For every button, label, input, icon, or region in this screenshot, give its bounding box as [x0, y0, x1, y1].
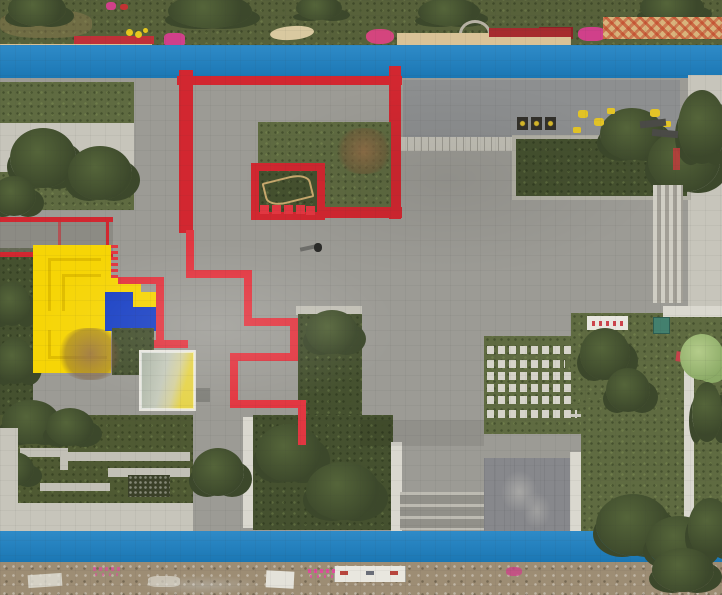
aerial-photo-stage	[0, 0, 722, 595]
pink-graffiti	[308, 568, 336, 580]
stone-bench-strip	[400, 137, 514, 151]
tree-icon	[692, 382, 722, 442]
debris-white-panels	[334, 566, 406, 582]
pink-spinner	[366, 29, 394, 44]
tree-icon	[192, 448, 244, 496]
red-dotted-railing	[111, 245, 118, 279]
red-edge-bottom	[150, 340, 188, 348]
bare-shrub	[336, 128, 392, 174]
zigzag-segment	[230, 353, 298, 361]
debris-white-box	[266, 570, 295, 588]
red-marker	[673, 148, 680, 170]
maze-wall-top	[177, 76, 402, 85]
slab-row	[487, 346, 571, 354]
slab-row	[487, 372, 575, 380]
zigzag-segment	[298, 400, 306, 445]
dark-ramp	[484, 458, 572, 533]
pebble-patch	[128, 475, 170, 497]
tree-icon	[306, 310, 358, 354]
slab-row	[487, 384, 583, 392]
tree-icon	[678, 90, 722, 164]
tree-icon	[680, 334, 722, 380]
red-chairs-row	[260, 205, 269, 214]
slab-row	[487, 396, 571, 404]
left-grass-bed	[0, 82, 134, 123]
panel-mark	[366, 571, 374, 575]
garden-south-path	[0, 503, 193, 533]
panel-mark	[340, 571, 348, 575]
garden-west-path	[0, 428, 18, 506]
pink-graffiti	[93, 566, 121, 579]
east-walk-corner	[663, 306, 722, 317]
zigzag-segment	[244, 270, 252, 325]
garden-stone-wall	[63, 452, 190, 461]
red-edge-right	[156, 277, 164, 347]
terrace-contour	[62, 274, 101, 311]
east-stairs	[653, 185, 683, 303]
bare-tree	[58, 328, 122, 380]
lattice-fence	[603, 17, 722, 39]
play-equipment-red	[120, 4, 128, 10]
left-shrub-column	[0, 248, 33, 415]
debris-white-bits	[148, 576, 180, 587]
utility-box	[653, 317, 670, 334]
bench-glyph-block	[517, 117, 528, 130]
zigzag-segment	[230, 400, 306, 408]
maze-wall-left	[179, 70, 193, 233]
tree-icon	[652, 548, 714, 592]
red-bench-top-left	[74, 36, 154, 44]
pedestrian	[314, 243, 322, 252]
tree-icon	[46, 408, 94, 446]
running-track-top	[0, 45, 722, 78]
panel-mark	[390, 571, 398, 575]
pink-play-item	[578, 27, 606, 41]
debris-white-bits	[28, 573, 63, 588]
zigzag-segment	[186, 270, 252, 278]
yellow-notch	[133, 292, 158, 307]
bench-glyph-block	[545, 117, 556, 130]
red-bench-top-right	[489, 28, 571, 37]
zigzag-segment	[230, 353, 238, 407]
slab-row	[487, 360, 565, 368]
character-benches	[517, 117, 558, 131]
bench-glyph-block	[531, 117, 542, 130]
garden-stone-wall	[40, 483, 110, 491]
yellow-flowers	[126, 29, 133, 36]
pink-debris	[506, 567, 522, 576]
garden-stone-wall	[60, 448, 68, 470]
plaza-south-steps	[400, 492, 484, 530]
slab-row	[487, 410, 577, 418]
tree-icon	[68, 146, 132, 200]
tree-icon	[0, 176, 36, 216]
play-equipment-pink	[106, 2, 116, 10]
maze-wall-bottom	[322, 207, 402, 218]
glass-canopy	[139, 350, 196, 411]
tree-icon	[306, 462, 380, 520]
paving-shade-band	[360, 420, 484, 446]
yellow-fitness-equipment	[578, 110, 588, 118]
bed-white-wall-left	[243, 417, 253, 528]
tree-icon	[606, 368, 650, 412]
